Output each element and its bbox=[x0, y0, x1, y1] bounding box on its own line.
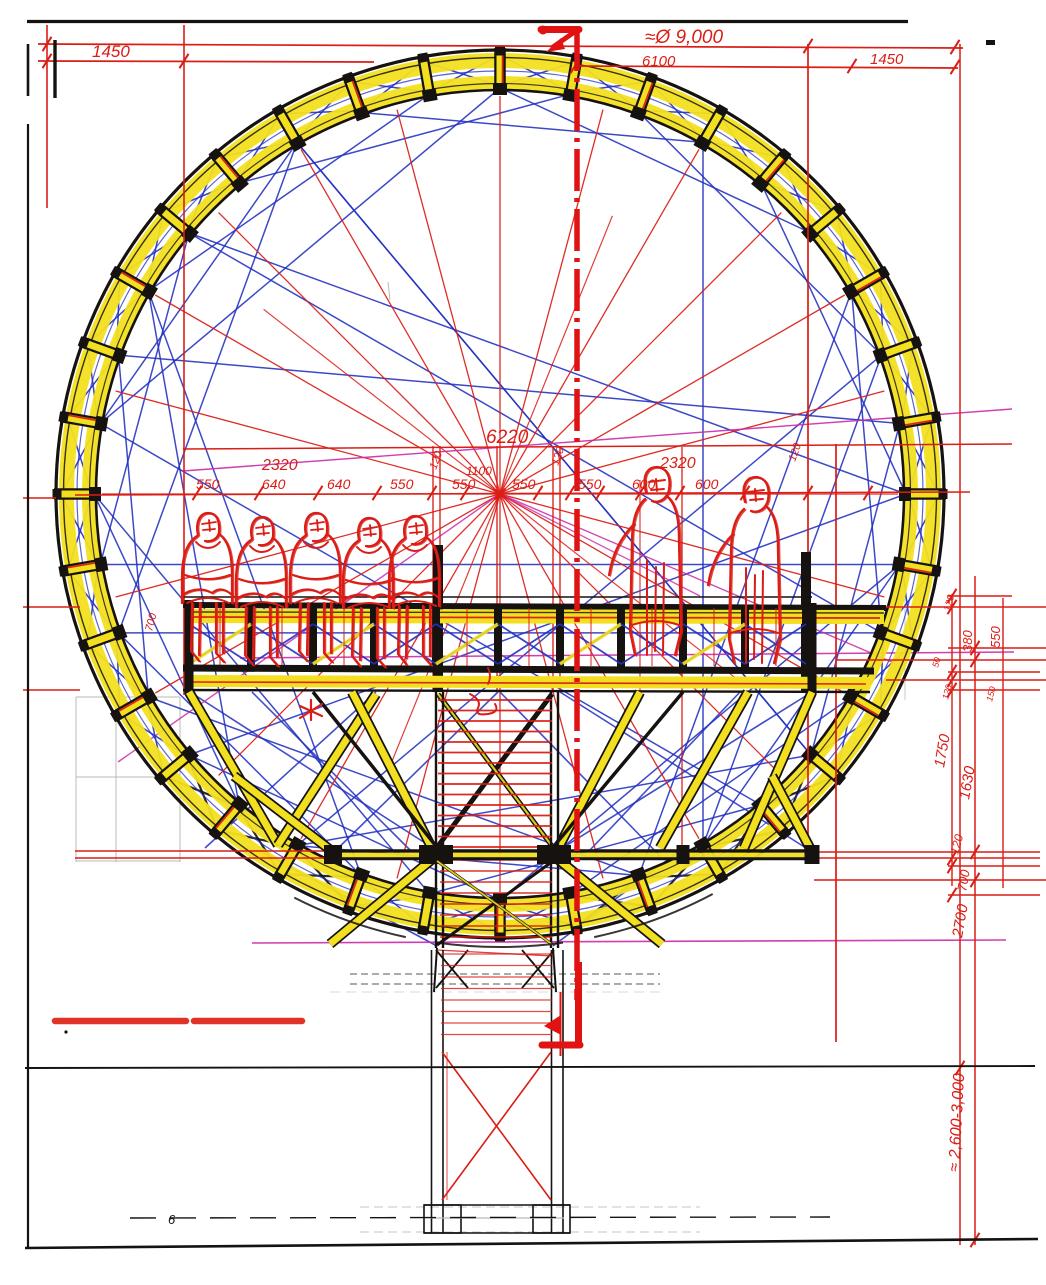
svg-text:550: 550 bbox=[578, 476, 602, 492]
svg-text:550: 550 bbox=[452, 476, 476, 492]
svg-text:≈Ø 9,000: ≈Ø 9,000 bbox=[645, 27, 723, 48]
svg-text:6: 6 bbox=[168, 1212, 176, 1227]
svg-text:640: 640 bbox=[327, 476, 351, 492]
svg-text:550: 550 bbox=[512, 476, 536, 492]
svg-text:6100: 6100 bbox=[642, 53, 676, 70]
svg-text:380: 380 bbox=[960, 630, 975, 652]
svg-text:1450: 1450 bbox=[92, 42, 130, 61]
svg-text:550: 550 bbox=[196, 476, 220, 492]
svg-text:550: 550 bbox=[390, 476, 414, 492]
svg-text:600: 600 bbox=[695, 476, 719, 492]
svg-text:2320: 2320 bbox=[261, 457, 298, 474]
svg-text:550: 550 bbox=[988, 626, 1003, 648]
svg-text:1450: 1450 bbox=[870, 51, 904, 68]
svg-text:640: 640 bbox=[262, 476, 286, 492]
svg-text:6220: 6220 bbox=[486, 427, 529, 448]
